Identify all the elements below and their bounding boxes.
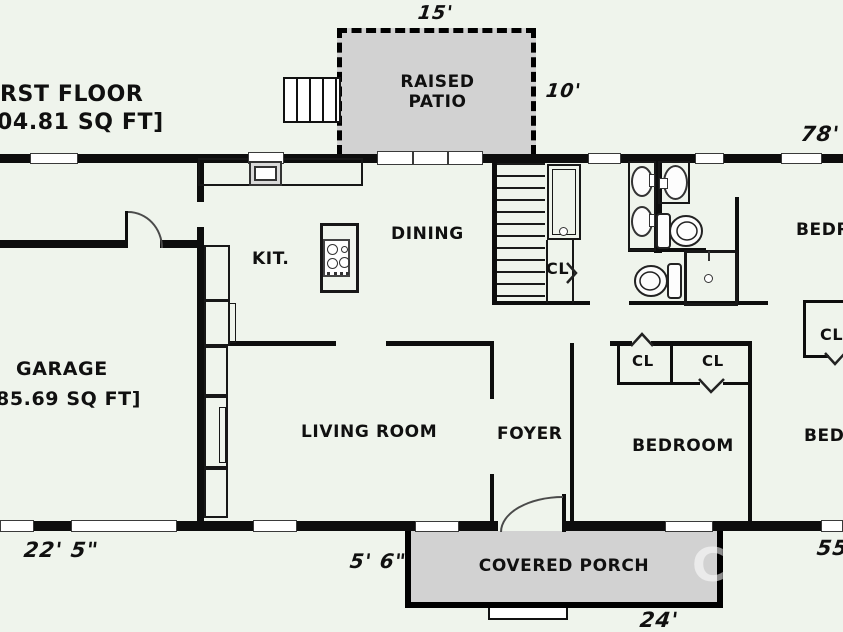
window-garage-2: [71, 520, 177, 532]
slider-mullion: [447, 152, 449, 164]
cooktop-controls: [327, 272, 349, 275]
closet-label-hall: CL: [546, 259, 569, 278]
window-porch-1: [415, 521, 459, 532]
dimension-garage-side: 22' 5": [23, 538, 100, 562]
burner-icon: [341, 246, 348, 253]
cabinet: [204, 468, 228, 518]
room-label-living-room: LIVING ROOM: [301, 422, 437, 442]
wall-closet-divider: [670, 341, 673, 385]
wall-kitchen-living-a: [230, 341, 336, 346]
chevron-up-icon: [629, 331, 655, 348]
garage-door-swing-arc: [128, 211, 163, 248]
dimension-patio-depth: 10': [545, 80, 583, 102]
cabinet-inner: [219, 407, 226, 463]
window-garage-1: [0, 520, 34, 532]
window-bottom-right: [821, 520, 843, 532]
shower-valve: [708, 251, 710, 261]
shower-stall-inner: [552, 169, 576, 235]
slider-mullion: [412, 152, 414, 164]
front-door-swing-arc: [500, 496, 563, 532]
cabinet: [204, 245, 230, 301]
closet-label-bedroom-left: CL: [632, 352, 654, 370]
faucet-icon: [649, 174, 655, 187]
window-top-4: [781, 153, 822, 164]
room-label-kitchen: KIT.: [252, 249, 289, 269]
dimension-overall-width: 78': [800, 122, 842, 146]
room-label-dining: DINING: [391, 224, 464, 244]
dimension-porch-offset: 5' 6": [349, 549, 408, 573]
room-label-foyer: FOYER: [497, 424, 562, 444]
room-label-garage-sqft: 85.69 SQ FT]: [0, 388, 141, 410]
room-label-bedroom-center: BEDROOM: [617, 436, 749, 456]
closet-label-bedroom-right: CL: [702, 352, 724, 370]
wall-foyer-left-upper: [490, 341, 494, 399]
window-top-2: [588, 153, 621, 164]
toilet-icon: [655, 209, 705, 253]
burner-icon: [339, 257, 350, 268]
dimension-patio-width: 15': [417, 2, 455, 24]
wall-right-closet-left: [803, 300, 806, 358]
cabinet: [204, 346, 228, 396]
room-label-covered-porch: COVERED PORCH: [405, 556, 723, 576]
wall-garage-right-lower: [197, 227, 204, 530]
cabinet-door: [228, 303, 236, 343]
cabinet: [204, 300, 230, 346]
wall-closet-left: [617, 341, 620, 385]
wall-kitchen-living-b: [386, 341, 493, 346]
wall-foyer-right: [570, 343, 574, 523]
staircase: [497, 163, 545, 303]
dimension-porch-width: 24': [639, 608, 681, 632]
window-living: [253, 520, 297, 532]
wall-closet-top-b: [651, 341, 752, 346]
chevron-down-icon: [697, 377, 726, 395]
wall-right-closet-top: [803, 300, 843, 303]
wall-foyer-left-lower: [490, 474, 494, 526]
room-label-bedroom-bottom-right: BEDROOM: [804, 426, 843, 446]
floor-plan: C: [0, 0, 843, 632]
window-top-1: [30, 153, 78, 164]
dimension-right-side: 55': [816, 536, 843, 560]
wall-closet-bottom-b: [723, 382, 752, 385]
shower-knob: [559, 227, 568, 236]
patio-slider-door: [377, 151, 483, 165]
toilet-icon: [633, 259, 683, 303]
burner-icon: [327, 244, 338, 255]
window-bedroom-porch: [665, 521, 713, 532]
window-top-3: [695, 153, 724, 164]
shower-drain: [704, 274, 713, 283]
patio-steps: [283, 77, 341, 123]
wall-bedroom-right: [748, 343, 752, 523]
wall-closet-bottom-a: [617, 382, 700, 385]
closet-label-right-bedroom: CL: [820, 325, 843, 344]
room-label-bedroom-top-right: BEDROOM: [796, 220, 843, 240]
burner-icon: [327, 258, 338, 269]
faucet-icon: [659, 178, 668, 189]
room-label-garage: GARAGE: [16, 358, 108, 380]
room-label-raised-patio: RAISED PATIO: [380, 72, 495, 113]
kitchen-sink-basin: [254, 166, 277, 181]
chevron-down-icon: [823, 351, 843, 367]
wall-garage-top-left: [0, 240, 127, 248]
plan-title-sqft: 04.81 SQ FT]: [0, 110, 164, 135]
plan-title: RST FLOOR: [0, 82, 143, 107]
